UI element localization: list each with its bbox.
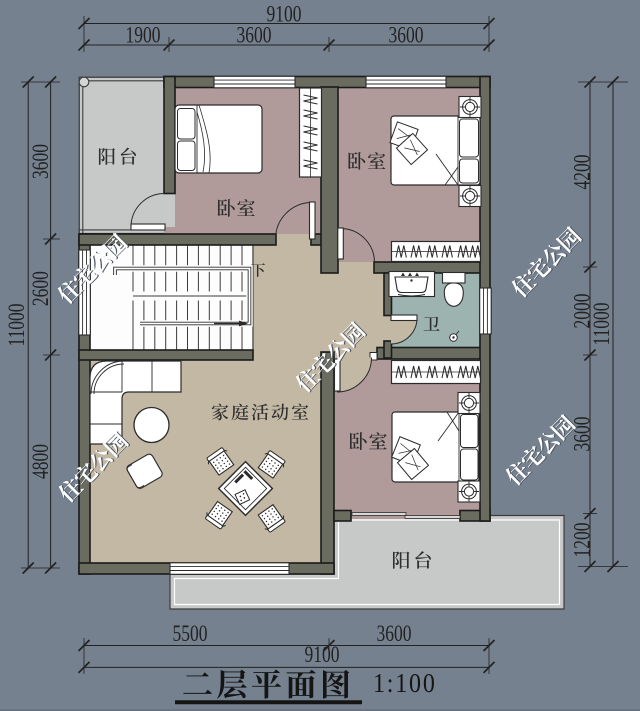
svg-text:2600: 2600 (29, 271, 54, 306)
svg-text:3600: 3600 (29, 144, 54, 179)
svg-text:1900: 1900 (126, 23, 161, 48)
svg-text:3600: 3600 (237, 23, 272, 48)
svg-text:1:100: 1:100 (373, 668, 437, 699)
svg-text:3600: 3600 (570, 417, 595, 452)
svg-text:3600: 3600 (377, 622, 412, 647)
svg-text:11000: 11000 (5, 303, 30, 346)
svg-text:9100: 9100 (305, 643, 340, 668)
svg-text:1200: 1200 (570, 523, 595, 558)
svg-text:4800: 4800 (29, 444, 54, 479)
svg-text:3600: 3600 (389, 23, 424, 48)
svg-text:11000: 11000 (590, 302, 615, 345)
svg-text:5500: 5500 (173, 622, 208, 647)
svg-text:9100: 9100 (267, 2, 302, 27)
svg-text:4200: 4200 (570, 155, 595, 190)
